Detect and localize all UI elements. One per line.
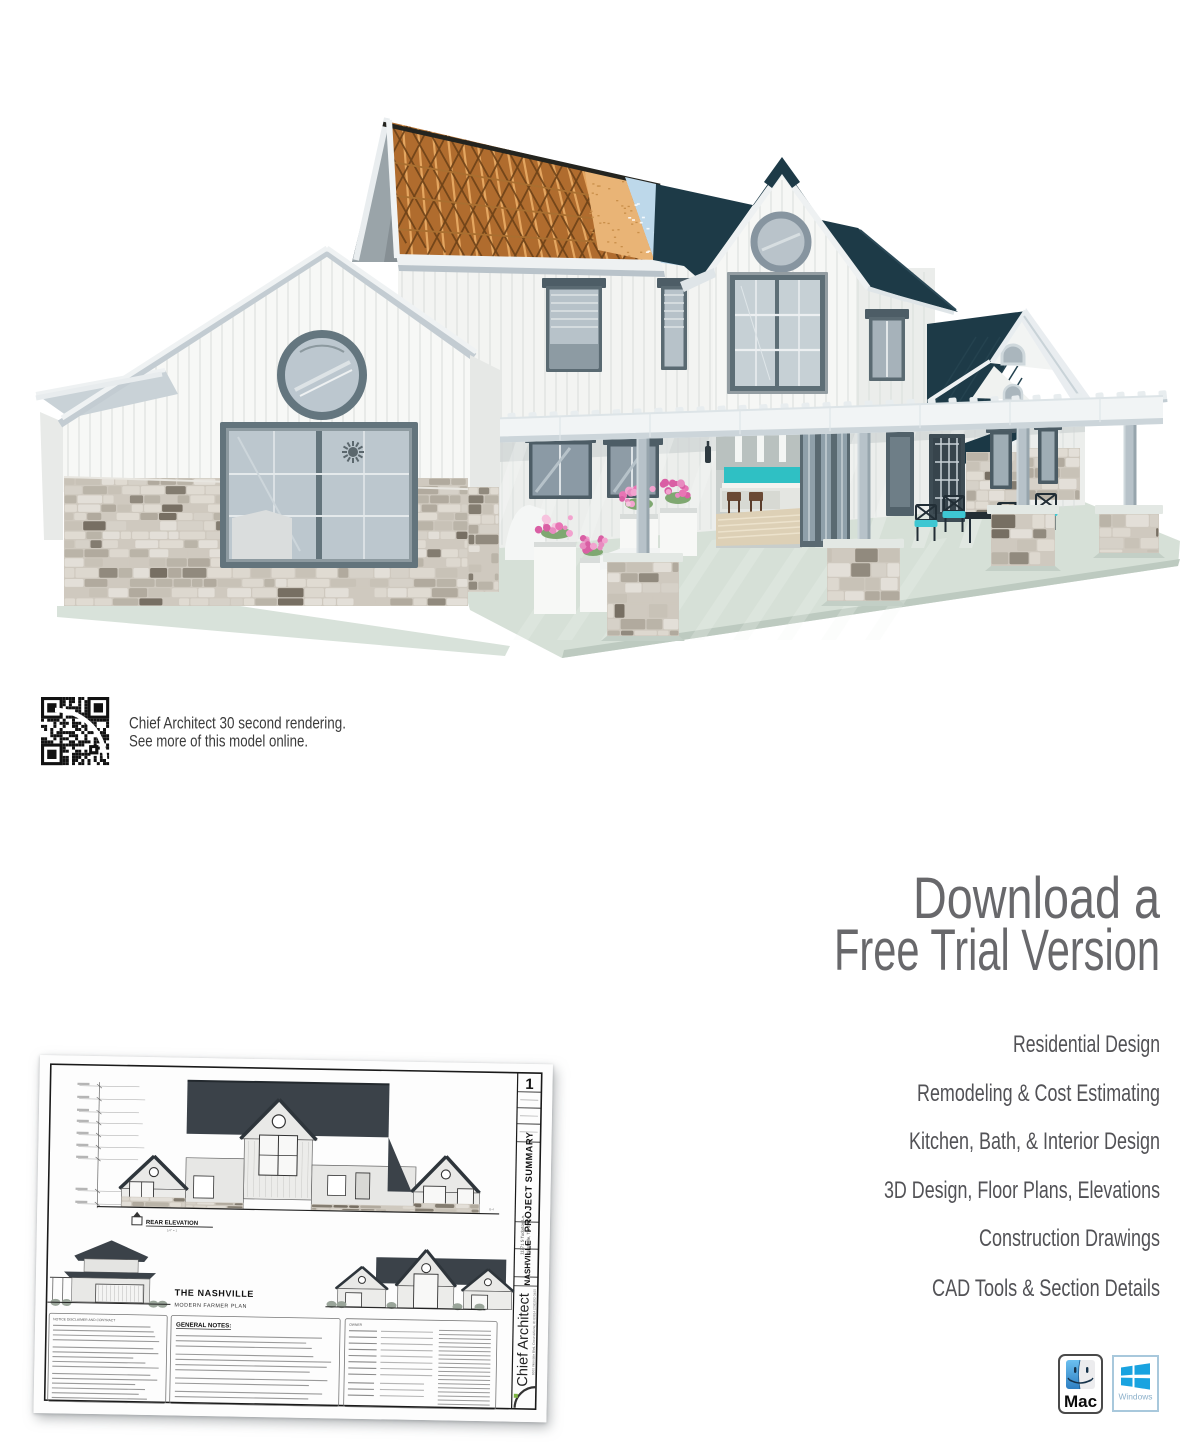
svg-text:Windows: Windows — [1119, 1392, 1153, 1402]
svg-text:See more of this model online.: See more of this model online. — [129, 733, 308, 751]
svg-text:CAD Tools & Section Details: CAD Tools & Section Details — [932, 1275, 1160, 1302]
svg-text:1/4" = 1: 1/4" = 1 — [167, 1228, 178, 1232]
svg-text:Mac: Mac — [1064, 1392, 1097, 1411]
svg-text:Chief Architect 30 second rend: Chief Architect 30 second rendering. — [129, 715, 346, 733]
svg-text:Residential Design: Residential Design — [1013, 1031, 1160, 1058]
svg-text:NASHVILLE: NASHVILLE — [523, 1240, 533, 1286]
svg-text:Kitchen, Bath, & Interior Desi: Kitchen, Bath, & Interior Design — [909, 1128, 1160, 1155]
svg-text:Free Trial Version: Free Trial Version — [834, 918, 1160, 982]
svg-text:OWNER: OWNER — [349, 1323, 363, 1327]
svg-text:THE NASHVILLE: THE NASHVILLE — [175, 1288, 254, 1299]
svg-text:1: 1 — [525, 1076, 534, 1093]
svg-text:Construction Drawings: Construction Drawings — [979, 1225, 1160, 1252]
svg-text:B-4: B-4 — [489, 1207, 494, 1211]
svg-text:Chief Architect: Chief Architect — [515, 1293, 533, 1387]
svg-text:3D Design, Floor Plans, Elevat: 3D Design, Floor Plans, Elevations — [884, 1177, 1160, 1204]
svg-text:Remodeling & Cost Estimating: Remodeling & Cost Estimating — [917, 1080, 1160, 1107]
